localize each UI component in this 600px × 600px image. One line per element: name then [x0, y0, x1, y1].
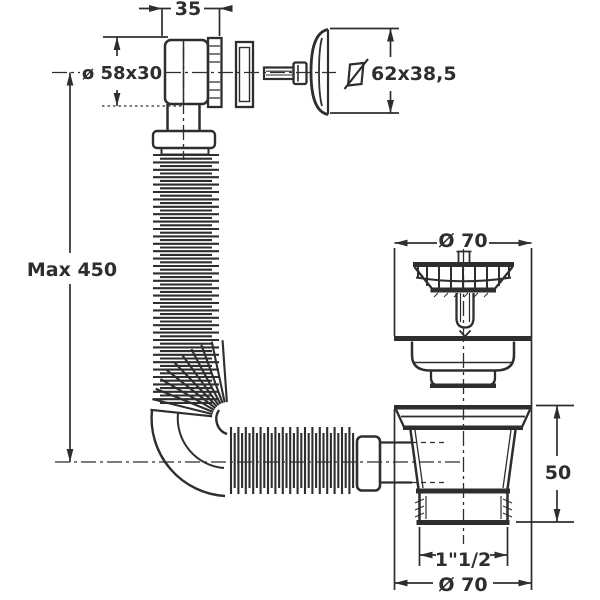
dim-label-strainer-diameter: Ø 70 — [438, 230, 487, 252]
overflow-screw — [264, 63, 307, 85]
dim-label-cup-height: 50 — [545, 462, 571, 484]
basket-stem — [457, 293, 474, 328]
dim-label-overflow-elbow: ø 58x30 — [82, 63, 162, 84]
overflow-gasket — [236, 42, 253, 107]
cup-bottom — [416, 489, 510, 494]
dim-label-elbow-depth: 35 — [175, 0, 201, 20]
basket-top-ring — [413, 262, 514, 267]
screw-shaft — [264, 68, 294, 80]
flange-top-plate — [394, 336, 532, 341]
dim-label-cup-diameter: Ø 70 — [438, 574, 487, 596]
dim-label-hose-max-length: Max 450 — [27, 259, 117, 281]
cup-rim — [394, 405, 532, 410]
cup-collar — [403, 426, 523, 431]
flexible-hose-horizontal — [231, 427, 353, 494]
screw-head — [294, 63, 307, 85]
hose-bend — [150, 340, 227, 496]
dimension-lines — [70, 9, 574, 591]
technical-drawing-canvas: 35 ø 58x30 62x38,5 Max 450 Ø 70 50 1"1/2… — [0, 0, 600, 600]
overflow-elbow — [153, 38, 222, 155]
basket-bottom-ring — [431, 288, 497, 293]
dimension-labels: 35 ø 58x30 62x38,5 Max 450 Ø 70 50 1"1/2… — [27, 0, 571, 596]
basket-mesh-ribs — [418, 267, 509, 289]
hose-end-sleeve — [357, 437, 444, 491]
dim-label-outlet-thread: 1"1/2 — [435, 549, 492, 571]
dim-label-overflow-cover: 62x38,5 — [371, 63, 457, 85]
slashed-square-icon — [345, 59, 369, 89]
